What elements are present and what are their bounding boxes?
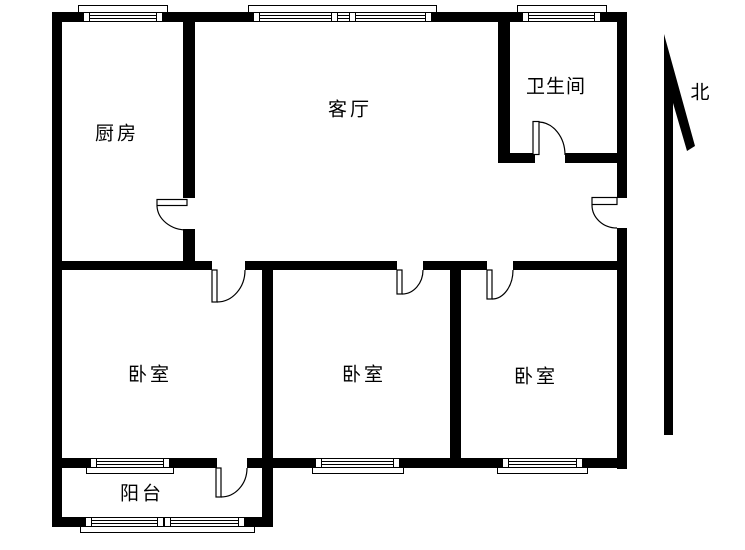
wall-right-exterior [617, 12, 627, 469]
room-label-bedroom-right: 卧室 [514, 368, 558, 387]
floor-plan-drawing [0, 0, 745, 550]
window-living-room [249, 6, 437, 22]
room-label-bathroom: 卫生间 [526, 78, 586, 97]
opening-balcony-door [217, 458, 247, 468]
wall-middle-horizontal [52, 261, 617, 270]
window-balcony [81, 518, 255, 533]
window-kitchen [79, 6, 168, 22]
wall-bedroom2-bedroom3 [450, 261, 461, 468]
north-label: 北 [690, 84, 709, 103]
doors [157, 122, 617, 498]
window-bedroom-left [87, 459, 174, 474]
window-bathroom [518, 6, 607, 22]
opening-entry-door [617, 198, 627, 228]
room-label-bedroom-middle: 卧室 [342, 366, 386, 385]
room-label-kitchen: 厨房 [95, 125, 139, 144]
door-balcony [216, 468, 247, 497]
door-bedroom-right [487, 270, 513, 299]
door-bedroom-middle [397, 270, 423, 294]
window-bedroom-right [498, 459, 588, 474]
door-openings [183, 153, 627, 468]
wall-bedroom1-bedroom2 [262, 261, 273, 527]
floor-plan-canvas: 厨房 客厅 卫生间 卧室 卧室 卧室 阳台 北 [0, 0, 745, 550]
door-entry [592, 198, 617, 229]
door-bedroom-left [212, 270, 245, 302]
room-label-bedroom-left: 卧室 [128, 366, 172, 385]
opening-bedroom3-door [487, 261, 513, 270]
door-bathroom [533, 122, 565, 156]
door-kitchen [157, 200, 187, 231]
opening-bedroom1-door [212, 261, 245, 270]
opening-bedroom2-door [397, 261, 423, 270]
room-label-balcony: 阳台 [120, 485, 164, 504]
window-bedroom-middle [313, 459, 404, 474]
room-label-living-room: 客厅 [328, 101, 372, 120]
wall-bathroom-left [498, 22, 510, 163]
